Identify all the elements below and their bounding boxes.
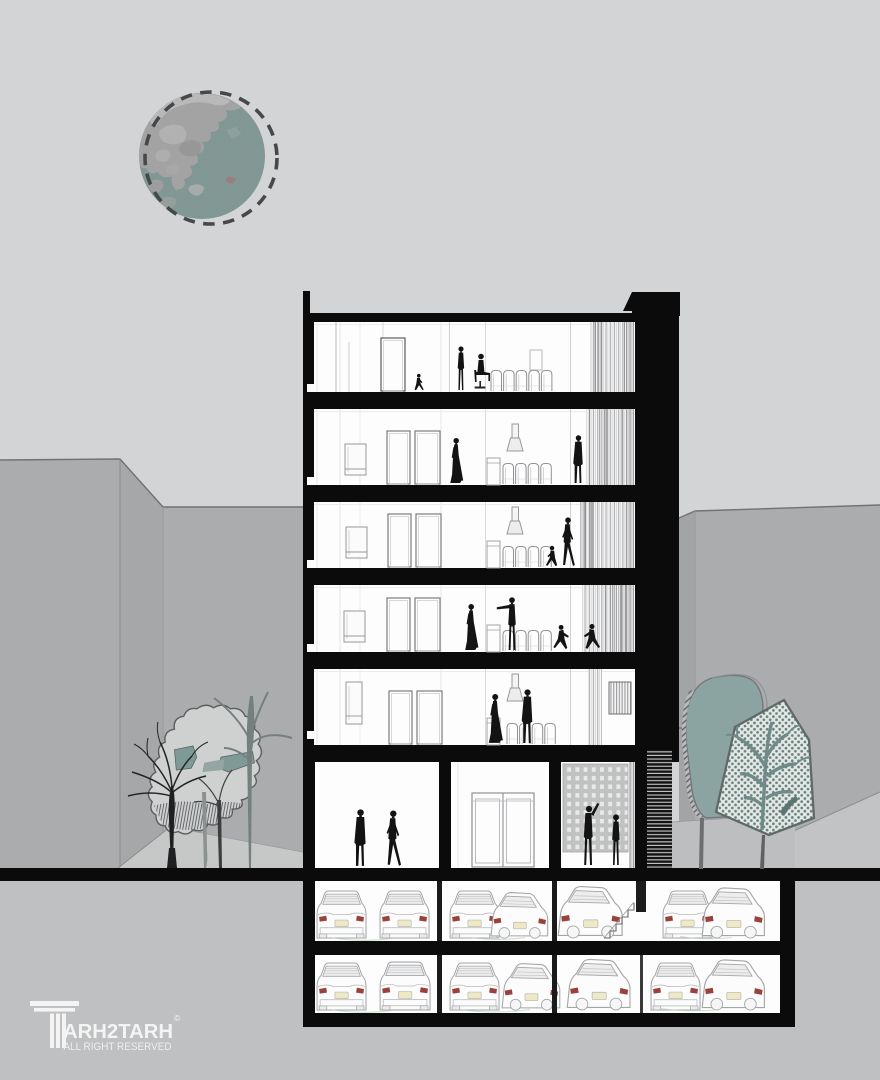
svg-text:ARH2TARH: ARH2TARH [63, 1020, 173, 1043]
svg-text:©: © [174, 1013, 181, 1023]
svg-text:ALL RIGHT RESERVED: ALL RIGHT RESERVED [64, 1041, 172, 1053]
